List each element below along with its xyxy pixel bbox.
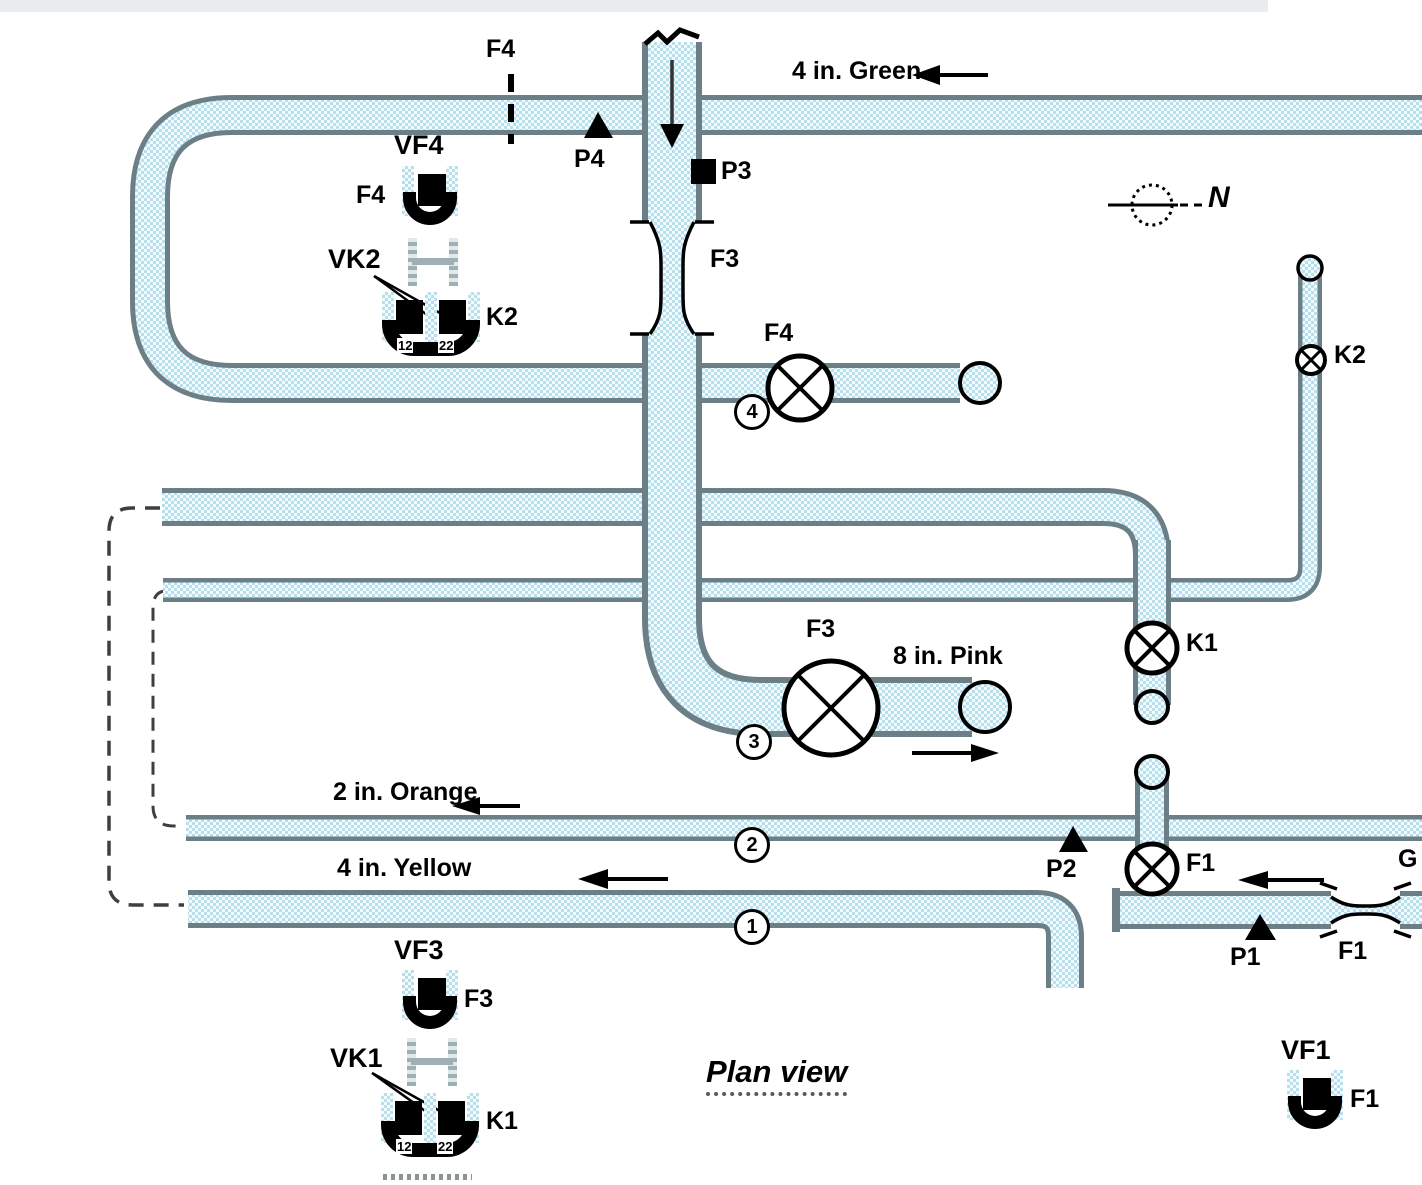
pipe-end-cap — [960, 682, 1010, 732]
flow-arrow-green-return — [1238, 871, 1324, 889]
pipe-break-icon — [645, 30, 699, 44]
line-number-3: 3 — [736, 724, 772, 760]
hidden-line-yellow — [109, 508, 184, 905]
label-p1: P1 — [1230, 944, 1261, 970]
label-vf1-meter: F1 — [1350, 1086, 1379, 1112]
transducer-sub-label: 22 — [437, 1139, 453, 1154]
pipe-end-cap — [1298, 256, 1322, 280]
label-pink-line: 8 in. Pink — [893, 643, 1003, 669]
line-number-1: 1 — [734, 909, 770, 945]
flowmeter-vf1-icon — [1287, 1070, 1343, 1144]
pipe-flat-end — [1112, 888, 1120, 932]
north-symbol-icon — [1108, 185, 1208, 225]
valve-k1-icon — [1127, 623, 1177, 673]
flow-arrow-green — [912, 65, 988, 85]
transducer-sub-label: 12 — [396, 1139, 412, 1154]
label-yellow-line: 4 in. Yellow — [337, 855, 471, 881]
label-vk1: VK1 — [330, 1044, 383, 1072]
pipe-end-cap — [1136, 756, 1168, 788]
label-orange-line: 2 in. Orange — [333, 779, 477, 805]
meter-k2-icon: 12 22 — [382, 292, 480, 368]
meter-k1-icon: 12 22 — [381, 1093, 479, 1169]
transducer-sub-label: 22 — [438, 338, 454, 353]
line-number-2: 2 — [734, 827, 770, 863]
label-k1-meter: K1 — [486, 1108, 518, 1134]
label-p2: P2 — [1046, 856, 1077, 882]
spacer-hatch-icon — [408, 238, 458, 286]
flow-arrow-yellow — [578, 869, 668, 889]
valve-f4-icon — [768, 356, 832, 420]
plan-view-diagram: 4 in. Green F4 P4 P3 F3 N F4 K2 K1 F3 8 … — [0, 0, 1422, 1185]
label-f1-venturi: F1 — [1338, 938, 1367, 964]
label-vf4-meter: F4 — [356, 182, 385, 208]
label-f4-orifice: F4 — [486, 36, 515, 62]
pipe-end-cap — [1136, 691, 1168, 723]
label-g-cutoff: G — [1398, 846, 1417, 872]
hidden-line-orange — [153, 591, 184, 826]
label-f3-valve: F3 — [806, 616, 835, 642]
label-f1-valve: F1 — [1186, 850, 1215, 876]
label-vf4: VF4 — [394, 131, 444, 159]
valve-f1-icon — [1127, 844, 1177, 894]
label-vk2: VK2 — [328, 245, 381, 273]
flowmeter-vf3-icon — [402, 970, 458, 1044]
label-vf3-meter: F3 — [464, 986, 493, 1012]
transducer-sub-label: 12 — [397, 338, 413, 353]
label-north: N — [1208, 182, 1230, 214]
label-p4: P4 — [574, 146, 605, 172]
label-vf3: VF3 — [394, 936, 444, 964]
label-f3-venturi: F3 — [710, 246, 739, 272]
label-vf1: VF1 — [1281, 1036, 1331, 1064]
label-green-line: 4 in. Green — [792, 58, 921, 84]
label-k2-valve: K2 — [1334, 342, 1366, 368]
flowmeter-vf4-icon — [402, 166, 458, 240]
label-f4-valve: F4 — [764, 320, 793, 346]
tap-p3-icon — [691, 159, 716, 184]
label-k1-valve: K1 — [1186, 630, 1218, 656]
pipe-end-cap — [960, 363, 1000, 403]
valve-k2-icon — [1297, 346, 1325, 374]
label-k2-meter: K2 — [486, 304, 518, 330]
flow-arrow-pink — [912, 744, 999, 762]
valve-f3-icon — [784, 661, 878, 755]
line-number-4: 4 — [734, 394, 770, 430]
label-p3: P3 — [721, 158, 752, 184]
piping-layer — [0, 0, 1422, 1185]
pipe-yellow — [188, 909, 1065, 988]
spacer-hatch-icon — [407, 1038, 457, 1086]
page-title: Plan view — [706, 1056, 847, 1096]
